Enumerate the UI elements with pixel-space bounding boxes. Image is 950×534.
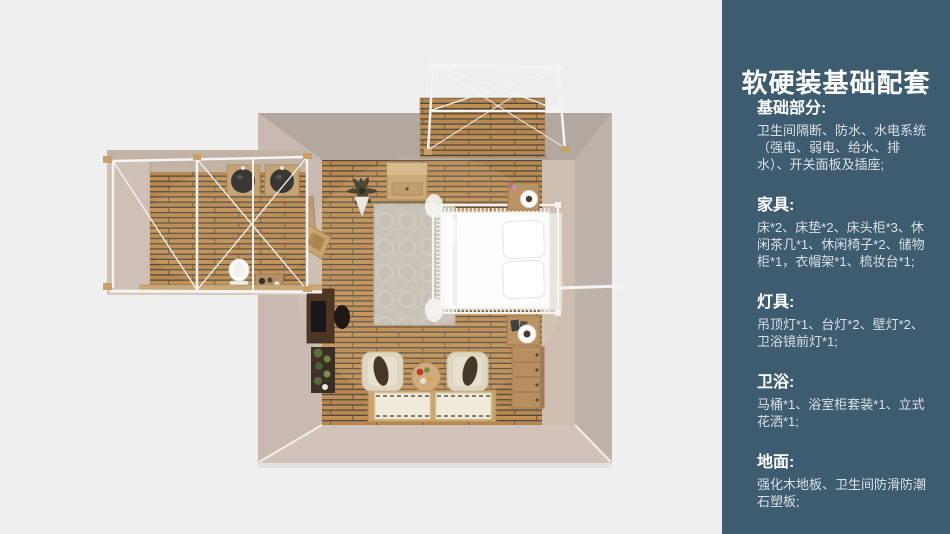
lounge-chair-left <box>362 352 403 391</box>
tv-screen <box>311 301 326 332</box>
section-body: 马桶*1、浴室柜套装*1、立式花洒*1; <box>757 396 931 430</box>
lounge-chair-right <box>447 352 488 391</box>
slide: 软硬装基础配套 基础部分: 卫生间隔断、防水、水电系统（强电、弱电、给水、排水）… <box>0 0 950 534</box>
section-body: 床*2、床垫*2、床头柜*3、休闲茶几*1、休闲椅子*2、储物柜*1，衣帽架*1… <box>757 219 931 270</box>
nightstand-top <box>508 183 539 210</box>
coffee-table <box>412 363 441 392</box>
bed <box>425 194 550 322</box>
section-heading: 卫浴: <box>757 373 931 393</box>
bathroom-sink-right <box>265 165 299 196</box>
section-heading: 灯具: <box>757 293 931 313</box>
panel-sections: 基础部分: 卫生间隔断、防水、水电系统（强电、弱电、给水、排水）、开关面板及插座… <box>757 99 931 533</box>
section-heading: 家具: <box>757 196 931 216</box>
section-basics: 基础部分: 卫生间隔断、防水、水电系统（强电、弱电、给水、排水）、开关面板及插座… <box>757 99 931 173</box>
section-heading: 地面: <box>757 453 931 473</box>
info-panel: 软硬装基础配套 基础部分: 卫生间隔断、防水、水电系统（强电、弱电、给水、排水）… <box>722 0 950 534</box>
panel-title: 软硬装基础配套 <box>722 63 950 100</box>
dresser <box>512 347 544 408</box>
plant-shelf <box>311 347 335 393</box>
desk-chair <box>334 305 350 329</box>
section-body: 吊顶灯*1、台灯*2、壁灯*2、卫浴镜前灯*1; <box>757 316 931 350</box>
section-heading: 基础部分: <box>757 99 931 119</box>
section-lighting: 灯具: 吊顶灯*1、台灯*2、壁灯*2、卫浴镜前灯*1; <box>757 293 931 350</box>
section-bathroom: 卫浴: 马桶*1、浴室柜套装*1、立式花洒*1; <box>757 373 931 430</box>
pillow <box>502 260 544 298</box>
pillow <box>502 220 544 258</box>
bathroom-sink-left <box>227 165 260 196</box>
section-flooring: 地面: 强化木地板、卫生间防滑防潮石塑板; <box>757 453 931 510</box>
nightstand-bottom <box>507 316 540 345</box>
storage-cabinet <box>387 163 427 200</box>
section-body: 强化木地板、卫生间防滑防潮石塑板; <box>757 476 931 510</box>
section-body: 卫生间隔断、防水、水电系统（强电、弱电、给水、排水）、开关面板及插座; <box>757 122 931 173</box>
floor-platform-mattresses <box>368 390 496 422</box>
section-furniture: 家具: 床*2、床垫*2、床头柜*3、休闲茶几*1、休闲椅子*2、储物柜*1，衣… <box>757 196 931 270</box>
bathroom <box>103 150 322 295</box>
floorplan-render <box>0 0 722 534</box>
